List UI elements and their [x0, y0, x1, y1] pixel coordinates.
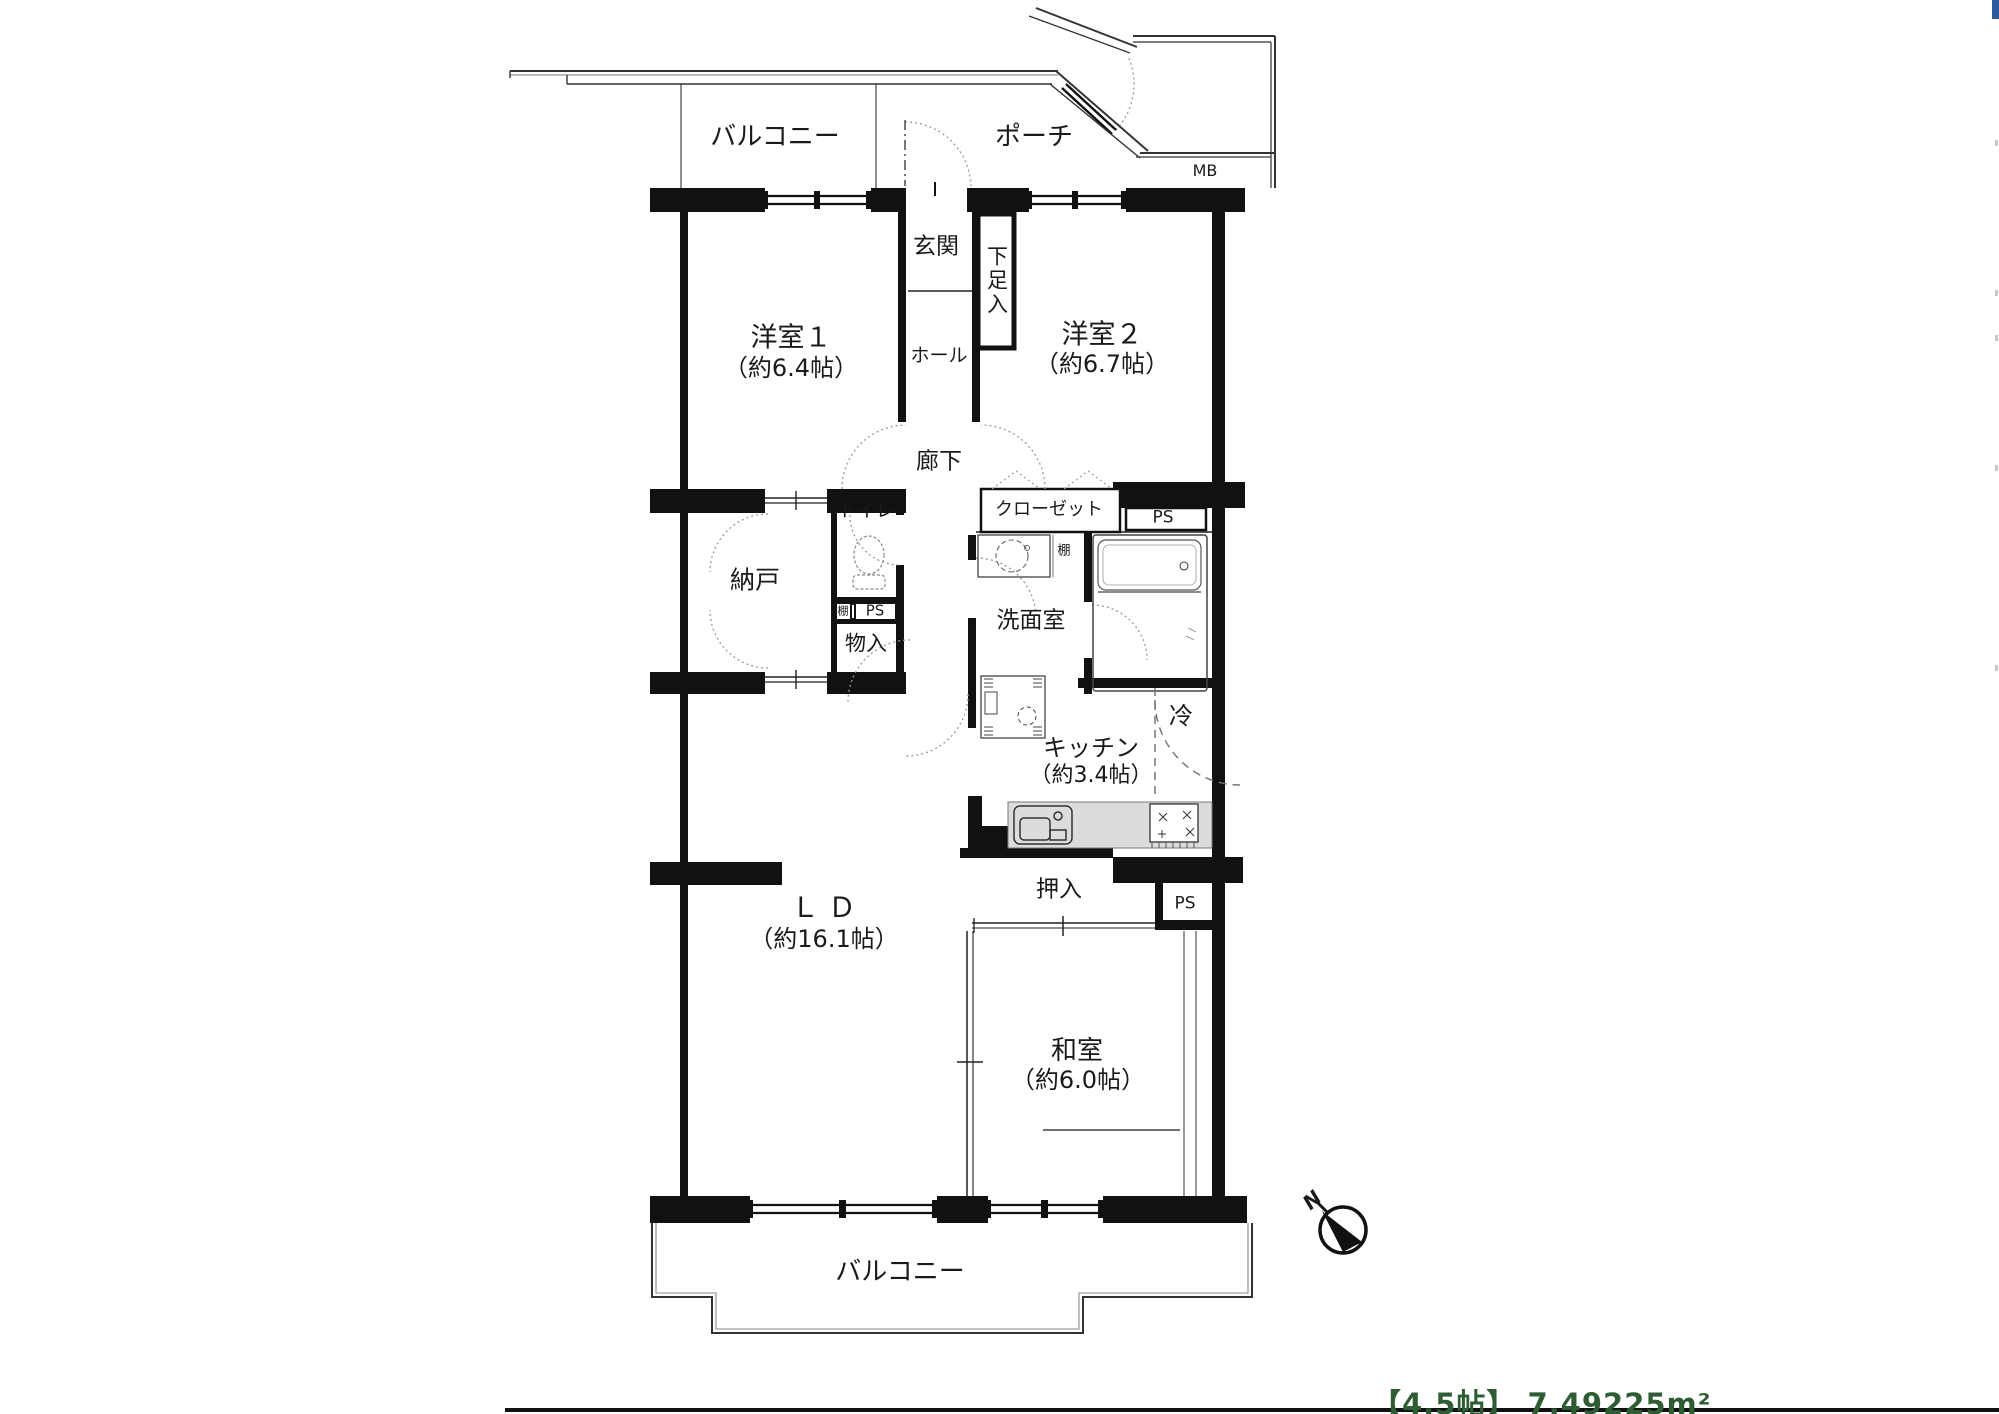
washing-machine-pan [981, 676, 1045, 738]
storage-room-bottom-arc [710, 610, 768, 668]
exterior-walls [650, 188, 1247, 1223]
compass-icon [1318, 1203, 1366, 1253]
floorplan-drawing [0, 0, 1999, 1414]
label-hall: ホール [910, 347, 967, 366]
label-japanese-room-name: 和室 [1051, 1038, 1103, 1064]
corner-tab [1992, 0, 1999, 19]
label-genkan: 玄関 [913, 236, 959, 259]
toilet-fixture [853, 536, 885, 589]
label-toilet: トイレ [837, 502, 894, 521]
refrigerator-space [1155, 688, 1240, 800]
floorplan-page: バルコニー ポーチ MB 玄関 下足入 ホール 廊下 洋室１ （約6.4帖） 洋… [0, 0, 1999, 1414]
refrigerator-door-arc [1155, 700, 1240, 785]
label-closet: クローゼット [995, 501, 1103, 519]
label-western2-size: （約6.7帖） [1035, 352, 1169, 376]
area-note-text: 【4.5帖】 7.49225m² [1372, 1390, 1711, 1414]
label-shelf-right: 棚 [1057, 545, 1070, 558]
door-arcs [710, 56, 1147, 756]
porch-gate-arc [1116, 56, 1134, 130]
western2-door-arc [981, 425, 1045, 489]
toilet-door-arc [850, 515, 900, 565]
label-shoe-cupboard: 下足入 [986, 245, 1007, 317]
label-shelf-small: 棚 [838, 606, 849, 617]
label-kitchen-name: キッチン [1043, 736, 1139, 760]
label-porch: ポーチ [995, 124, 1073, 150]
label-ps-small: PS [866, 604, 885, 619]
label-balcony-top: バルコニー [710, 124, 839, 150]
storage-room-top-arc [710, 514, 768, 572]
label-western2-name: 洋室２ [1062, 322, 1143, 349]
label-western1-name: 洋室１ [751, 325, 832, 352]
kitchen-stove [1150, 804, 1198, 842]
washbasin-fixture [978, 535, 1053, 577]
bath-unit [1093, 535, 1207, 691]
label-refrigerator: 冷 [1169, 704, 1193, 728]
label-western1-size: （約6.4帖） [724, 356, 858, 380]
label-ps-right: PS [1152, 510, 1173, 527]
label-oshiire: 押入 [1036, 879, 1082, 902]
label-mb: MB [1193, 163, 1218, 179]
label-kitchen-size: （約3.4帖） [1030, 765, 1153, 787]
label-japanese-room-size: （約6.0帖） [1011, 1068, 1145, 1092]
bath-door-arc [1092, 605, 1147, 660]
label-storage-box: 物入 [845, 634, 887, 655]
label-ps-bottom: PS [1174, 896, 1195, 913]
entrance-door-arc [905, 122, 971, 188]
bottom-border-line [505, 1408, 1999, 1412]
label-washroom: 洗面室 [997, 610, 1066, 633]
corridor-ld-arc1 [906, 694, 968, 756]
western1-door-arc [842, 425, 906, 489]
closet-bifold-marks [992, 471, 1112, 489]
label-corridor: 廊下 [916, 451, 962, 474]
closet-boxes [836, 214, 1206, 620]
label-balcony-bottom: バルコニー [835, 1259, 964, 1285]
label-storage-room: 納戸 [730, 568, 780, 593]
kitchen-counter [1008, 802, 1212, 848]
label-ld-name: ＬＤ [791, 894, 865, 922]
label-ld-size: （約16.1帖） [749, 927, 898, 951]
